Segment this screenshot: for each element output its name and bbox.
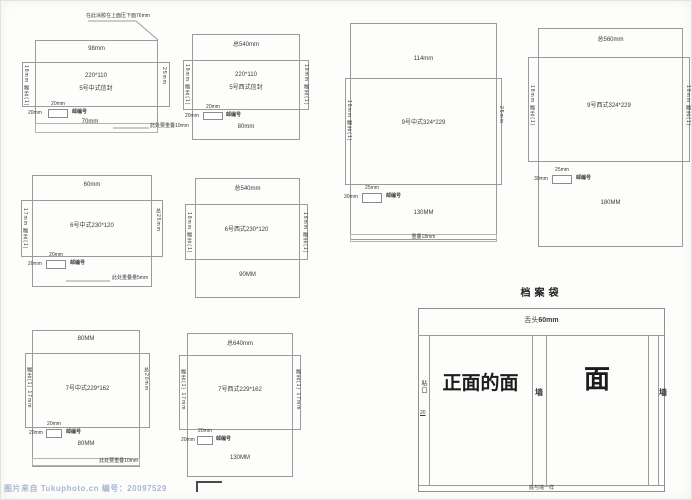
wall-right-line-2	[658, 335, 659, 485]
wall-right-line-1	[648, 335, 649, 485]
envelope-dieline-sheet: 在此涂胶在上面压下面76mm 98mm 220*110 5号中式信封 18mm …	[0, 0, 692, 500]
overlap-note: 此处要重叠10mm	[62, 459, 138, 465]
archive-bag-title: 档案袋	[418, 288, 665, 300]
postal-code-box	[46, 260, 66, 269]
postal-width-label: 20mm	[46, 253, 66, 259]
front-panel-label: 正面的面	[429, 373, 532, 395]
right-tab-label: 18mm 糊舌(1)	[303, 64, 310, 106]
wall-left-line-1	[532, 335, 533, 485]
postal-height-label: 20mm	[185, 114, 199, 120]
postal-width-label: 20mm	[46, 422, 62, 428]
postal-code-box	[362, 193, 382, 203]
watermark-corner-mark	[196, 481, 222, 492]
total-dimension: 总560mm	[538, 37, 683, 44]
postal-label: 邮编号	[66, 430, 81, 436]
postal-width-label: 25mm	[362, 186, 382, 192]
envelope-label: 9号西式324*229	[528, 103, 690, 110]
postal-height-label: 20mm	[29, 431, 43, 437]
glue-note: 在此涂胶在上面压下面76mm	[86, 14, 150, 20]
postal-code-box	[48, 109, 68, 118]
tongue-size: 60mm	[538, 317, 558, 324]
left-tab-label: 18mm 糊舌(1)	[23, 65, 30, 105]
postal-width-label: 20mm	[197, 429, 213, 435]
postal-code-box	[552, 175, 572, 184]
wall-left-line-2	[546, 335, 547, 485]
right-tab-label: 糊舌(1) 17mm	[295, 369, 302, 417]
postal-width-label: 20mm	[203, 105, 223, 111]
overlap-note: 此处重叠量5mm	[112, 276, 148, 282]
total-dimension: 总540mm	[195, 186, 300, 193]
envelope-diagram-7-chinese: 80MM 7号中式229*162 糊舌(1) 17mm 总20mm 20mm 2…	[20, 325, 190, 475]
postal-label: 邮编号	[576, 176, 591, 182]
watermark-text: 图片来自 Tukuphoto.cn 编号：20097529	[4, 483, 167, 494]
envelope-label: 7号中式229*162	[25, 386, 150, 393]
postal-label: 邮编号	[386, 194, 401, 200]
postal-label: 邮编号	[226, 113, 241, 119]
postal-height-label: 20mm	[181, 438, 195, 444]
face-panel-label: 面	[546, 365, 648, 395]
tongue-fold-line	[418, 335, 665, 336]
envelope-label: 6号西式230*120	[185, 227, 308, 234]
fold-band	[22, 62, 170, 107]
left-tab-label: 糊舌(1) 17mm	[180, 369, 187, 417]
postal-label: 邮编号	[70, 261, 85, 267]
total-dimension: 总540mm	[192, 42, 300, 49]
envelope-diagram-5-western: 总540mm 220*110 5号西式信封 18mm 糊舌(1) 18mm 糊舌…	[180, 12, 315, 147]
right-tab-label: 25mm	[498, 106, 504, 146]
archive-bag-diagram: 档案袋 舌头60mm 粘口 20 正面的面 墙 面 墙 底与墙一样	[412, 285, 672, 497]
postal-label: 邮编号	[216, 437, 231, 443]
envelope-diagram-9-chinese: 114mm 9号中式324*229 18mm 糊舌(1) 25mm 25mm 3…	[340, 8, 512, 250]
right-tab-label: 总20mm	[143, 367, 150, 415]
flap-bottom-dimension: 130MM	[187, 455, 293, 462]
tongue-label: 舌头60mm	[418, 317, 665, 325]
postal-height-label: 20mm	[28, 262, 42, 268]
left-tab-label: 18mm 糊舌(1)	[529, 85, 536, 135]
postal-label: 邮编号	[72, 110, 87, 116]
postal-code-box	[203, 112, 223, 120]
fold-band	[345, 78, 502, 185]
flap-bottom-dimension: 130MM	[350, 210, 497, 217]
total-dimension: 总640mm	[187, 341, 293, 348]
glue-edge-label: 粘口	[419, 380, 428, 406]
envelope-label: 7号西式229*162	[179, 387, 301, 394]
postal-height-label: 30mm	[534, 177, 548, 183]
glue-edge-size: 20	[420, 411, 426, 417]
envelope-diagram-9-western: 总560mm 9号西式324*229 18mm 糊舌(1) 18mm 糊舌(1)…	[520, 15, 692, 255]
left-tab-label: 18mm 糊舌(1)	[346, 100, 353, 150]
body-width-label: 70mm	[60, 119, 120, 126]
flap-bottom-dimension: 180MM	[538, 200, 683, 207]
envelope-label: 9号中式324*229	[345, 120, 502, 127]
flap-dimension: 114mm	[350, 56, 497, 63]
flap-dimension: 80MM	[32, 336, 140, 343]
envelope-diagram-7-western: 总640mm 7号西式229*162 糊舌(1) 17mm 糊舌(1) 17mm…	[175, 325, 307, 485]
envelope-name: 5号西式信封	[183, 85, 309, 92]
wall-left-label: 墙	[532, 388, 546, 397]
envelope-size: 220*110	[22, 73, 170, 80]
left-tab-label: 17mm 糊舌(1)	[22, 208, 29, 250]
postal-height-label: 30mm	[344, 195, 358, 201]
envelope-size: 220*110	[183, 72, 309, 79]
glue-edge-line	[429, 335, 430, 485]
flap-dimension: 60mm	[32, 182, 152, 189]
envelope-diagram-5-chinese: 在此涂胶在上面压下面76mm 98mm 220*110 5号中式信封 18mm …	[20, 12, 190, 152]
postal-width-label: 20mm	[48, 102, 68, 108]
flap-bottom-dimension: 90MM	[195, 272, 300, 279]
envelope-name: 5号中式信封	[22, 86, 170, 93]
overlap-note: 重叠18mm	[350, 235, 497, 241]
postal-code-box	[46, 429, 62, 438]
left-tab-label: 糊舌(1) 17mm	[26, 367, 33, 415]
left-tab-label: 18mm 糊舌(1)	[184, 64, 191, 106]
right-tab-label: 总25mm	[155, 208, 162, 250]
flap-bottom-dimension: 80mm	[192, 124, 300, 131]
tongue-text: 舌头	[524, 317, 538, 324]
flap-bottom-dimension: 80MM	[32, 441, 140, 448]
wall-right-label: 墙	[656, 388, 670, 397]
right-tab-label: 18mm 糊舌(1)	[302, 212, 309, 254]
bag-bottom-note: 底与墙一样	[418, 486, 665, 492]
right-tab-label: 18mm 糊舌(1)	[685, 85, 692, 135]
flap-dimension: 98mm	[35, 46, 158, 53]
right-tab-label: 25mm	[161, 67, 167, 103]
postal-height-label: 20mm	[28, 111, 42, 117]
left-tab-label: 18mm 糊舌(1)	[186, 212, 193, 254]
envelope-label: 6号中式230*120	[21, 223, 163, 230]
postal-width-label: 25mm	[552, 168, 572, 174]
envelope-diagram-6-western: 总540mm 6号西式230*120 18mm 糊舌(1) 18mm 糊舌(1)…	[180, 172, 315, 302]
postal-code-box	[197, 436, 213, 445]
